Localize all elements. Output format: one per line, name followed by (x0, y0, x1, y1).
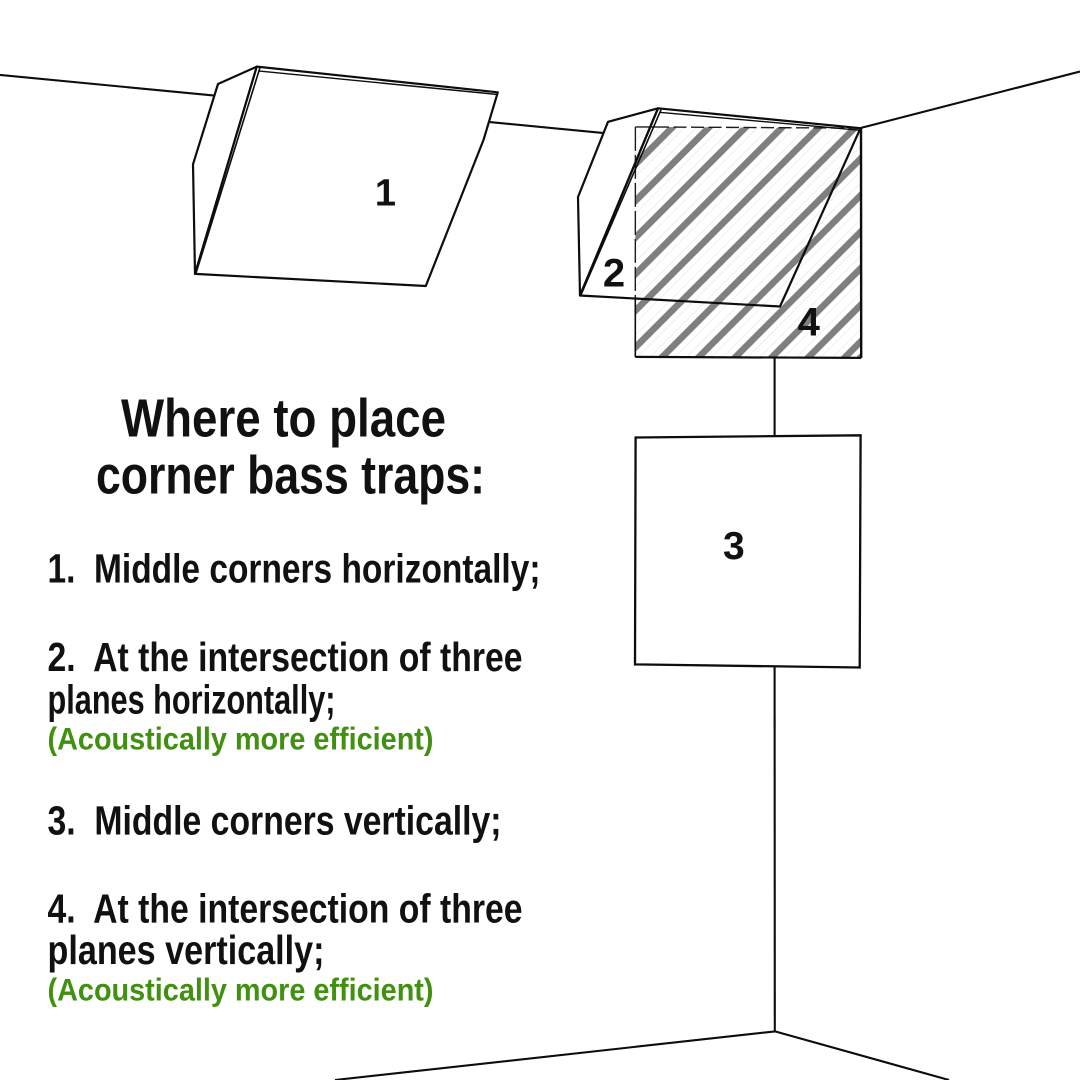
svg-text:(Acoustically more efficient): (Acoustically more efficient) (48, 721, 434, 757)
svg-text:planes vertically;: planes vertically; (48, 927, 325, 973)
svg-text:3. Middle corners vertically;: 3. Middle corners vertically; (48, 797, 502, 843)
svg-text:4. At the intersection of thr: 4. At the intersection of three (48, 885, 523, 931)
svg-text:4: 4 (798, 300, 821, 344)
svg-text:1. Middle corners horizontall: 1. Middle corners horizontally; (48, 545, 541, 591)
svg-text:2. At the intersection of thr: 2. At the intersection of three (48, 634, 523, 680)
svg-text:2: 2 (603, 252, 625, 296)
svg-text:corner bass traps:: corner bass traps: (96, 447, 485, 506)
svg-text:planes horizontally;: planes horizontally; (48, 676, 336, 722)
svg-text:3: 3 (723, 525, 745, 568)
svg-text:Where to place: Where to place (121, 389, 446, 448)
svg-text:1: 1 (375, 173, 396, 215)
svg-text:(Acoustically more efficient): (Acoustically more efficient) (48, 971, 434, 1007)
